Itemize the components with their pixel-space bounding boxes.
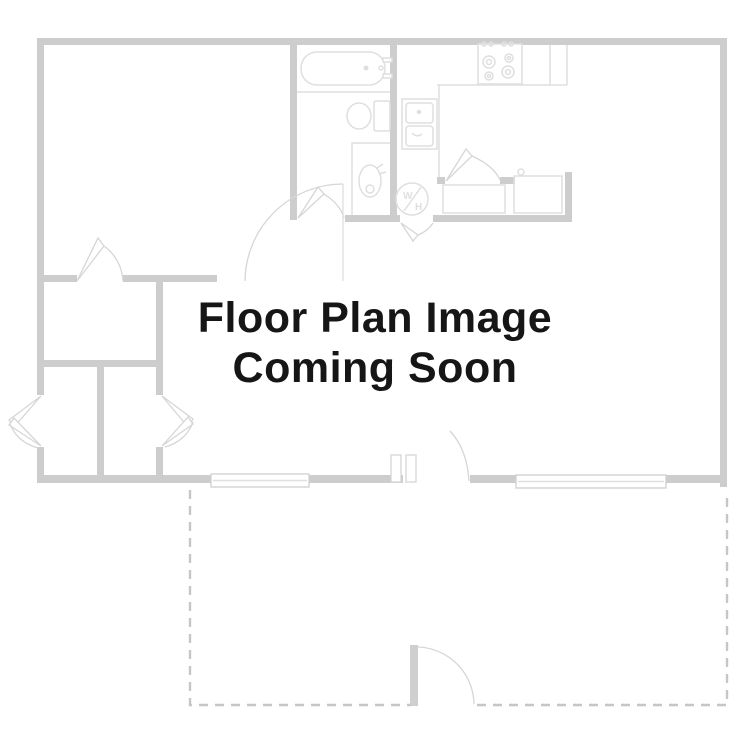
wall-kitchen-south-stub-a bbox=[437, 177, 445, 184]
placeholder-line-1: Floor Plan Image bbox=[0, 293, 750, 343]
bathroom-door-icon bbox=[298, 187, 324, 218]
bathroom-fixtures bbox=[297, 52, 392, 215]
windows bbox=[211, 474, 666, 488]
bathtub-faucet-icon bbox=[383, 74, 392, 78]
utility-fixtures: W H bbox=[396, 169, 562, 215]
wall-utility-south-b bbox=[433, 215, 572, 222]
water-heater-closet-door-icon bbox=[401, 223, 418, 241]
appliance-knob-icon bbox=[518, 169, 524, 175]
patio-entry-door-swing bbox=[450, 431, 469, 481]
placeholder-text: Floor Plan Image Coming Soon bbox=[0, 293, 750, 393]
kitchen-door-swing bbox=[472, 156, 500, 180]
bathtub-drain-icon bbox=[364, 66, 369, 71]
patio-dashed-outline bbox=[190, 490, 727, 705]
kitchen-sink-faucet-icon bbox=[412, 133, 422, 136]
doors bbox=[9, 149, 500, 706]
wall-bedroom-south-b bbox=[123, 275, 217, 282]
bathtub-faucet-icon bbox=[383, 58, 392, 62]
wall-utility-east bbox=[565, 172, 572, 222]
bedroom-closet-door-icon bbox=[77, 238, 104, 281]
patio-entry-door-leaf bbox=[406, 455, 416, 482]
kitchen-sink-icon bbox=[402, 99, 437, 149]
wall-bedroom-south-a bbox=[44, 275, 77, 282]
appliance-dryer-icon bbox=[514, 176, 562, 213]
kitchen-sink-drain-icon bbox=[417, 110, 421, 114]
wall-closet-east-lower bbox=[156, 447, 163, 475]
kitchen-door-icon bbox=[446, 149, 472, 181]
wall-kitchen-south-stub-b bbox=[500, 177, 515, 184]
placeholder-line-2: Coming Soon bbox=[0, 343, 750, 393]
water-heater-label: W bbox=[403, 191, 413, 202]
bathroom-door-swing bbox=[324, 194, 344, 218]
patio-gate-door-icon bbox=[410, 645, 418, 706]
wall-outer-right bbox=[720, 45, 727, 487]
stove-icon bbox=[478, 44, 522, 84]
bathroom-sink-icon bbox=[359, 165, 381, 197]
appliance-washer-icon bbox=[443, 185, 505, 213]
patio-gate-door-swing bbox=[418, 647, 474, 704]
floor-plan-placeholder-image: W H bbox=[0, 0, 750, 750]
bathtub-icon bbox=[301, 52, 385, 85]
toilet-bowl-icon bbox=[347, 103, 371, 129]
kitchen-fixtures bbox=[402, 42, 567, 177]
wall-bath-west bbox=[290, 45, 297, 220]
wall-outer-top bbox=[37, 38, 727, 45]
patio-entry-door-leaf bbox=[391, 455, 401, 482]
bedroom-closet-door-swing bbox=[104, 246, 123, 281]
water-heater-label: H bbox=[415, 202, 422, 213]
water-heater-closet-door-swing bbox=[418, 223, 433, 235]
wall-utility-south-a bbox=[345, 215, 400, 222]
toilet-tank-icon bbox=[374, 101, 390, 131]
